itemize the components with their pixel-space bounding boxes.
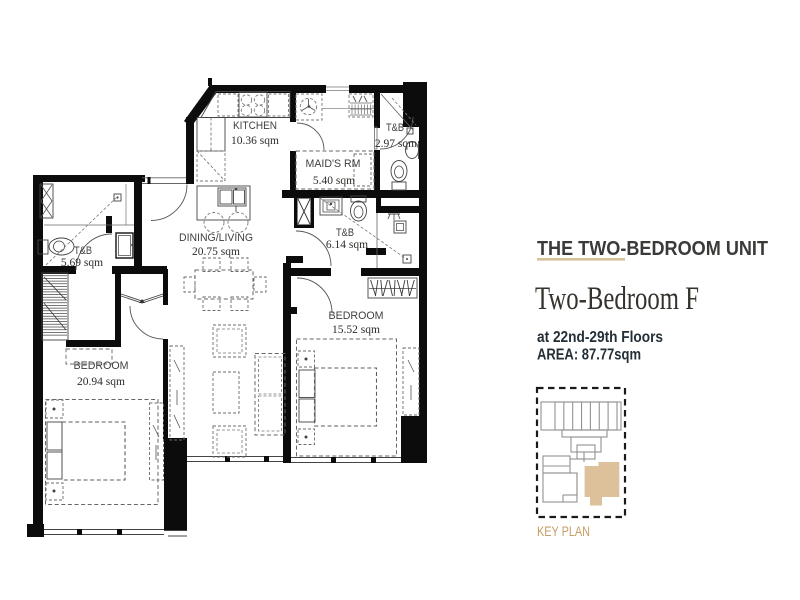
- svg-text:5.40 sqm: 5.40 sqm: [313, 175, 355, 187]
- svg-text:BEDROOM: BEDROOM: [74, 360, 129, 372]
- svg-text:T&B: T&B: [386, 122, 404, 134]
- svg-text:2.97 sqm: 2.97 sqm: [375, 138, 417, 150]
- svg-text:20.75 sqm: 20.75 sqm: [192, 246, 240, 258]
- svg-text:DINING/LIVING: DINING/LIVING: [179, 232, 253, 244]
- svg-text:MAID'S RM: MAID'S RM: [306, 158, 361, 170]
- svg-text:THE TWO-BEDROOM UNIT: THE TWO-BEDROOM UNIT: [537, 238, 768, 260]
- svg-text:6.14 sqm: 6.14 sqm: [326, 239, 368, 251]
- svg-text:AREA: 87.77sqm: AREA: 87.77sqm: [537, 347, 641, 364]
- svg-text:T&B: T&B: [336, 227, 354, 239]
- svg-text:at 22nd-29th Floors: at 22nd-29th Floors: [537, 329, 663, 346]
- svg-text:KITCHEN: KITCHEN: [233, 120, 277, 132]
- svg-text:T&B: T&B: [74, 245, 92, 257]
- svg-text:20.94 sqm: 20.94 sqm: [77, 376, 125, 388]
- svg-text:5.69 sqm: 5.69 sqm: [61, 257, 103, 269]
- svg-text:BEDROOM: BEDROOM: [329, 310, 384, 322]
- svg-text:Two-Bedroom F: Two-Bedroom F: [535, 281, 699, 317]
- svg-text:KEY PLAN: KEY PLAN: [537, 524, 590, 539]
- svg-text:10.36 sqm: 10.36 sqm: [231, 135, 279, 147]
- svg-text:15.52 sqm: 15.52 sqm: [332, 324, 380, 336]
